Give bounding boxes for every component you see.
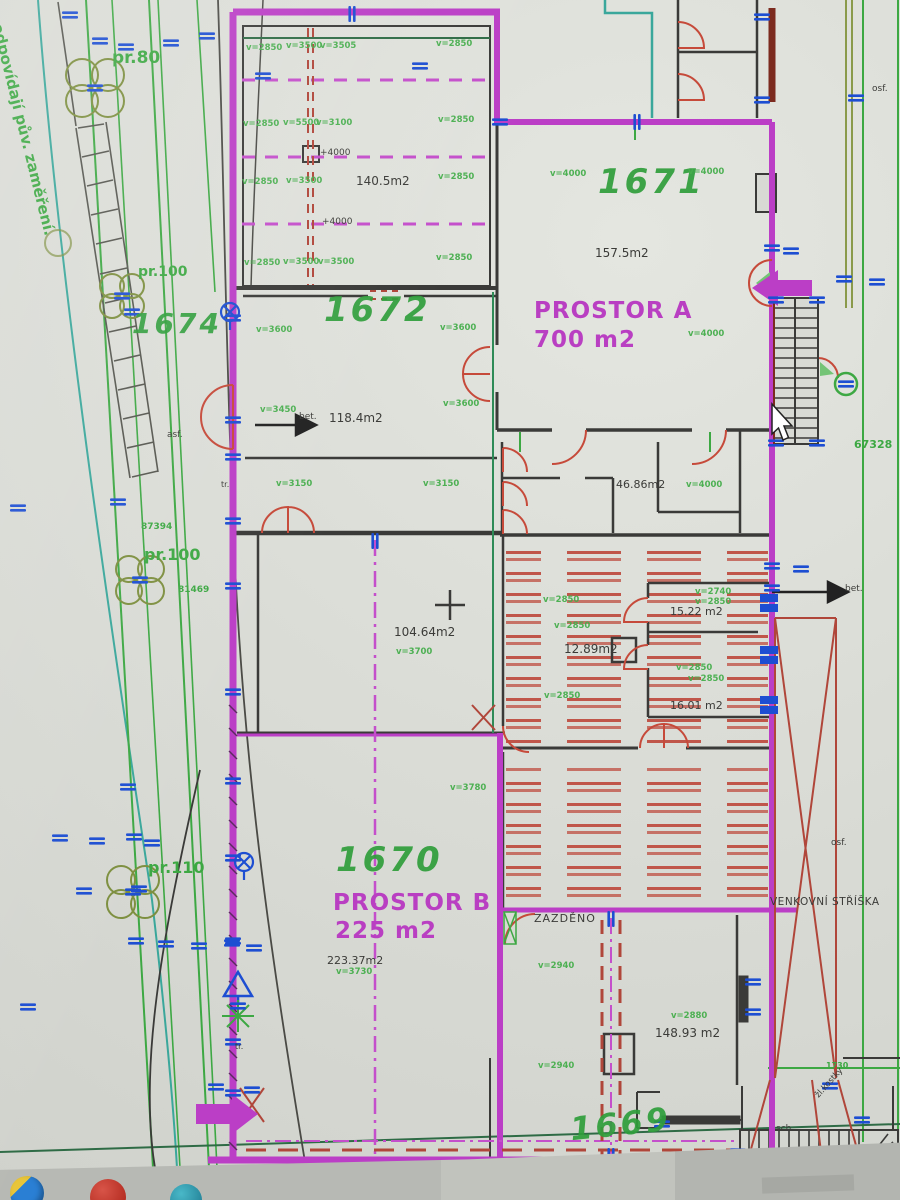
dim-label: v=3100 [316, 119, 352, 128]
dim-label: v=2850 [554, 622, 590, 631]
parcel-number-1674: 1674 [132, 310, 222, 338]
space-b-name: PROSTOR B [333, 892, 491, 915]
dim-label: v=2850 [688, 675, 724, 684]
parcel-number-1670: 1670 [336, 843, 443, 877]
room-area-118: 118.4m2 [329, 412, 383, 424]
dim-label: v=4000 [688, 330, 724, 339]
label-pr100-lower: pr.100 [144, 547, 201, 563]
room-area-140: 140.5m2 [356, 175, 410, 187]
taskbar-window-shape [762, 1174, 855, 1193]
label-venkovni-striska: VENKOVNÍ STŘÍŠKA [770, 897, 880, 908]
label-tr-lower: tr. [235, 1043, 243, 1051]
parcel-number-1672: 1672 [324, 293, 431, 327]
dim-label: v=3730 [336, 968, 372, 977]
dim-label: v=3600 [440, 324, 476, 333]
label-81469: 81469 [178, 586, 209, 595]
triangle-symbol [224, 972, 252, 1004]
dim-label: v=2940 [538, 962, 574, 971]
room-area-15: 15.22 m2 [670, 606, 723, 617]
dim-label: v=4000 [688, 168, 724, 177]
label-67328: 67328 [854, 439, 892, 450]
cad-floorplan-screenshot: odpovídají pův. zaměření. pr.80 pr.100 1… [0, 0, 900, 1200]
dim-label: v=3450 [260, 406, 296, 415]
dim-label: v=2880 [671, 1012, 707, 1021]
room-area-148: 148.93 m2 [655, 1027, 720, 1039]
dim-label: v=2850 [676, 664, 712, 673]
label-osf-top: osf. [872, 85, 888, 94]
dim-label: v=3500 [286, 42, 322, 51]
space-a-area: 700 m2 [534, 329, 636, 352]
dim-label: v=4000 [550, 170, 586, 179]
dim-label: v=5500 [283, 119, 319, 128]
dim-label: v=2850 [695, 598, 731, 607]
dim-label: v=2940 [538, 1062, 574, 1071]
dim-label: v=3600 [443, 400, 479, 409]
dim-label: v=2850 [438, 116, 474, 125]
room-area-16: 16.01 m2 [670, 700, 723, 711]
dim-label: v=3600 [256, 326, 292, 335]
dim-label: v=2850 [436, 254, 472, 263]
survey-circle [835, 373, 857, 395]
label-tr-upper: tr. [221, 481, 229, 489]
retaining-wall-hatch [76, 122, 158, 478]
label-bet-left: bet. [299, 413, 317, 422]
elevation-mark: +4000 [320, 149, 350, 158]
dim-label: v=2850 [543, 596, 579, 605]
label-87394: 87394 [141, 523, 172, 532]
dim-label: v=3500 [283, 258, 319, 267]
dim-label: v=2850 [244, 259, 280, 268]
label-osf-right: osf. [831, 839, 847, 848]
dim-label: v=4000 [686, 481, 722, 490]
label-pr100-upper: pr.100 [138, 265, 187, 279]
dim-label: v=3500 [318, 258, 354, 267]
dim-label: v=2850 [436, 40, 472, 49]
label-pr110: pr.110 [148, 860, 205, 876]
parcel-number-1669: 1669 [569, 1103, 673, 1145]
label-asf: asf. [167, 431, 183, 440]
dim-label: v=2850 [438, 173, 474, 182]
tree-symbols [45, 59, 164, 918]
dim-label: v=3150 [423, 480, 459, 489]
dim-label: v=2850 [246, 44, 282, 53]
room-area-157: 157.5m2 [595, 247, 649, 259]
radiator-marks [760, 594, 778, 714]
room-area-12: 12.89m2 [564, 643, 618, 655]
dim-label: v=3500 [286, 177, 322, 186]
dim-label: v=2740 [695, 588, 731, 597]
dim-label: v=2850 [242, 178, 278, 187]
dim-label: v=2850 [243, 120, 279, 129]
dim-label: v=3700 [396, 648, 432, 657]
elevation-mark: +4000 [322, 218, 352, 227]
dim-label: v=3150 [276, 480, 312, 489]
room-area-46: 46.86m2 [616, 479, 665, 490]
room-area-104: 104.64m2 [394, 626, 455, 638]
zazdeno-hatch [504, 912, 516, 944]
dim-label: v=3505 [320, 42, 356, 51]
teal-utility-line [605, 0, 652, 118]
label-zazdeno: ZAZDĚNO [534, 913, 596, 924]
space-a-name: PROSTOR A [534, 300, 692, 323]
space-b-area: 225 m2 [335, 920, 437, 943]
room-area-223: 223.37m2 [327, 955, 383, 966]
dim-label: v=3780 [450, 784, 486, 793]
label-pr80: pr.80 [112, 50, 160, 67]
dim-label: v=2850 [544, 692, 580, 701]
label-bet-right: bet. [845, 585, 863, 594]
label-sch: sch. [776, 1125, 794, 1134]
